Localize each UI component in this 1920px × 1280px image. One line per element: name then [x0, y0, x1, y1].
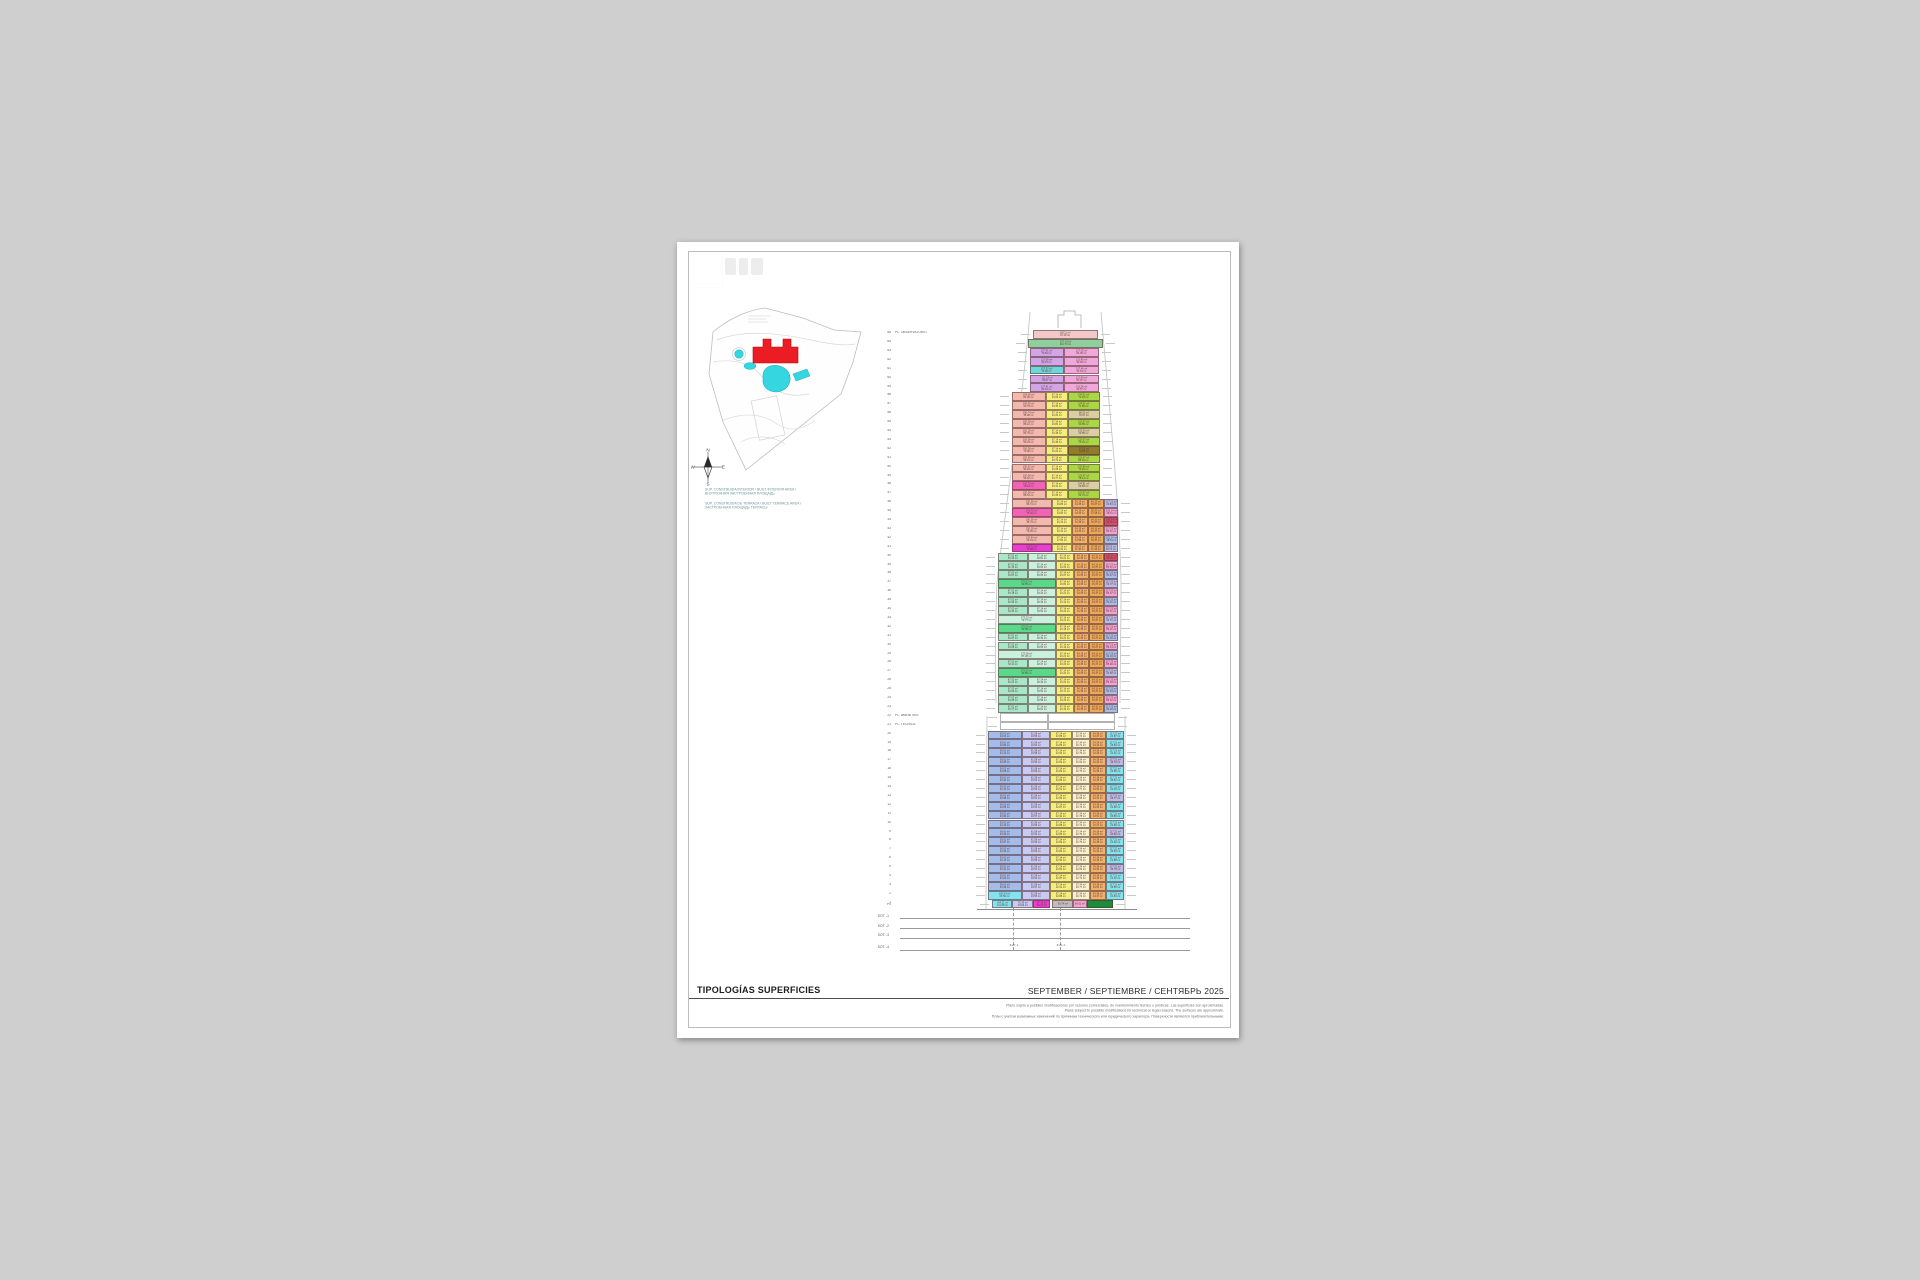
floor-tick-right — [1127, 744, 1136, 745]
cell-areas: 117.23 m²30.29 m² — [1105, 706, 1116, 711]
cell-areas: 237.14 m²110.73 m² — [1060, 341, 1071, 346]
floor-cell: 117.21 m²24.88 m² — [1106, 855, 1124, 864]
cell-areas: 117.21 m²45.80 m² — [1109, 830, 1120, 835]
floor-tick-left — [986, 708, 995, 709]
floor-cell: 54.38 m²19.50 m² — [1090, 882, 1106, 891]
floor-cell: 93.61 m²44.12 m² — [988, 748, 1022, 757]
floor-number: 15 — [879, 776, 891, 779]
floor-tick-left — [986, 610, 995, 611]
floor-cell: 64.10 m²15.37 m² — [1089, 686, 1104, 695]
floor-tick-right — [1127, 850, 1136, 851]
cell-areas: 54.18 m²19.35 m² — [1077, 554, 1087, 559]
floor-tick-right — [1103, 414, 1112, 415]
cell-areas: 117.23 m²85.21 m² — [1105, 528, 1116, 533]
floor-cell: 54.18 m²19.35 m² — [1074, 704, 1089, 713]
cell-areas: 87.02 m²33.17 m² — [1008, 706, 1018, 711]
cell-areas: 67.14 m²23.48 m² — [1052, 430, 1062, 435]
floor-cell: 121.89 m²51.97 m² — [1064, 375, 1099, 384]
floor-cell: 173.23 m²72.77 m² — [998, 615, 1056, 624]
cell-areas: 67.14 m²24.06 m² — [1052, 394, 1062, 399]
floor-cell: 54.18 m²19.35 m² — [1072, 526, 1088, 535]
floor-tick-right — [1103, 485, 1112, 486]
floor-cell: 57.34 m²22.75 m² — [1072, 766, 1090, 775]
cell-areas: 67.14 m²18.58 m² — [1037, 697, 1047, 702]
floor-cell: 54.18 m²19.35 m² — [1072, 508, 1088, 517]
cell-areas: 117.23 m²30.27 m² — [1105, 572, 1116, 577]
floor-tick-right — [1127, 824, 1136, 825]
cell-areas: 57.34 m²22.72 m² — [1076, 777, 1086, 782]
floor-cell: 93.61 m²44.02 m² — [988, 873, 1022, 882]
floor-cell: 64.10 m²15.37 m² — [1089, 677, 1104, 686]
floor-cell: 54.18 m²19.35 m² — [1074, 668, 1089, 677]
cell-areas: 93.74 m² — [1058, 903, 1068, 906]
floor-cell: 137.46 m²33.54 m² — [1064, 366, 1099, 375]
cell-areas: 131.86 m²94.09 m² — [1076, 358, 1087, 363]
cell-areas: 57.34 m²22.78 m² — [1076, 812, 1086, 817]
floor-cell: 67.14 m²23.12 m² — [1052, 526, 1072, 535]
canvas: N W E S SUP. CONSTRUIDA INTERIOR / BUILT… — [0, 0, 1920, 1280]
floor-cell: 54.18 m²19.35 m² — [1072, 517, 1088, 526]
floor-cell: 104.81 m²29.89 m² — [1068, 481, 1100, 490]
cell-areas: 54.38 m²19.47 m² — [1093, 892, 1103, 897]
cell-areas: 67.14 m²24.35 m² — [1052, 403, 1062, 408]
cell-areas: 117.23 m²30.25 m² — [1105, 634, 1116, 639]
floor-tick-left — [976, 841, 985, 842]
floor-cell: 157.52 m²73.46 m² — [1030, 366, 1064, 375]
floor-cell: 117.23 m²33.77 m² — [1104, 579, 1118, 588]
cell-areas: 54.18 m²19.35 m² — [1077, 572, 1087, 577]
floor-cell: 87.02 m²33.13 m² — [998, 553, 1028, 562]
floor-cell: 67.14 m²23.82 m² — [1056, 579, 1074, 588]
floor-tick-right — [1121, 619, 1130, 620]
floor-row: 47150.38 m²86.51 m²67.14 m²23.45 m²123.0… — [677, 490, 1239, 499]
floor-cell: 93.61 m²44.15 m² — [988, 784, 1022, 793]
cell-areas: 64.10 m²15.37 m² — [1091, 501, 1101, 506]
floor-cell: 123.08 m²94.15 m² — [1030, 357, 1064, 366]
floor-tick-left — [976, 788, 985, 789]
floor-cell: 124.01 m²74.63 m² — [1068, 392, 1100, 401]
floor-number: 50 — [879, 465, 891, 468]
cell-areas: 175.03 m²93.55 m² — [1021, 581, 1032, 586]
cell-areas: 67.14 m²23.79 m² — [1052, 456, 1062, 461]
floor-cell: 54.38 m²19.50 m² — [1090, 784, 1106, 793]
floor-row: 1164.21 m²111.08 m²76.39 m²29.84 m²87.16… — [677, 900, 1239, 909]
floor-tick-left — [1000, 450, 1009, 451]
floor-tick-right — [1121, 663, 1130, 664]
floor-cell: 150.28 m²86.12 m² — [1012, 419, 1046, 428]
floor-number: 45 — [879, 509, 891, 512]
floor-cell: 64.10 m²15.37 m² — [1088, 499, 1104, 508]
cell-areas: 117.21 m²24.87 m² — [1109, 732, 1120, 737]
floor-cell: 67.14 m²22.91 m² — [1050, 882, 1072, 891]
cell-areas: 54.18 m²19.35 m² — [1077, 706, 1087, 711]
floor-cell: 67.14 m²18.50 m² — [1028, 686, 1056, 695]
floor-tick-right — [1121, 530, 1130, 531]
floor-cell: 123.07 m²78.14 m² — [1068, 472, 1100, 481]
floor-cell: 64.10 m²15.37 m² — [1089, 704, 1104, 713]
floor-number: 47 — [879, 491, 891, 494]
floor-tick-right — [1103, 441, 1112, 442]
floor-row: 32175.03 m²93.58 m²67.14 m²23.18 m²54.18… — [677, 624, 1239, 633]
floor-cell: 54.18 m²19.35 m² — [1072, 499, 1088, 508]
floor-number: 23 — [879, 705, 891, 708]
floor-tick-left — [1018, 379, 1027, 380]
floor-tick-right — [1103, 468, 1112, 469]
cell-areas: 117.23 m²30.23 m² — [1105, 688, 1116, 693]
cell-areas: 54.18 m²19.35 m² — [1075, 528, 1085, 533]
cell-areas: 137.46 m²33.54 m² — [1076, 367, 1087, 372]
floor-cell: 57.48 m²17.46 m² — [1088, 544, 1104, 553]
cell-areas: 67.14 m²23.28 m² — [1052, 465, 1062, 470]
cell-areas: 61.58 m²19.52 m² — [1031, 830, 1041, 835]
cell-areas: 54.38 m²19.50 m² — [1093, 884, 1103, 889]
floor-cell: 54.18 m²19.35 m² — [1074, 561, 1089, 570]
floor-tick-right — [1121, 690, 1130, 691]
floor-cell: 54.38 m²19.44 m² — [1090, 739, 1106, 748]
floor-cell: 105.24 m²23.59 m² — [988, 891, 1022, 900]
cell-areas: 93.61 m²44.07 m² — [1000, 839, 1010, 844]
floor-tick-left — [1000, 405, 1009, 406]
floor-cell: 97.02 m²29.85 m² — [1068, 446, 1100, 455]
cell-areas: 54.38 m²19.43 m² — [1093, 830, 1103, 835]
floor-cell — [1000, 713, 1048, 722]
cell-areas: 67.14 m²18.44 m² — [1037, 590, 1047, 595]
floor-tick-left — [1018, 370, 1027, 371]
floor-number: 39 — [879, 563, 891, 566]
floor-cell: 127.05 m²82.05 m² — [1064, 348, 1099, 357]
cell-areas: 111.19 m²29.67 m² — [1042, 376, 1053, 381]
floor-cell: 100.54 m²29.84 m² — [1104, 517, 1118, 526]
cell-areas: 105.24 m²23.59 m² — [999, 892, 1010, 897]
floor-row: 51150.38 m²96.41 m²67.14 m²23.79 m²123.0… — [677, 455, 1239, 464]
cell-areas: 87.02 m²33.40 m² — [1008, 608, 1018, 613]
floor-number: 34 — [879, 607, 891, 610]
floor-cell: 103.00 m²29.85 m² — [1068, 428, 1100, 437]
floor-number: 30 — [879, 643, 891, 646]
floor-cell: 150.38 m²56.92 m² — [1012, 472, 1046, 481]
cell-areas: 57.34 m²22.77 m² — [1076, 884, 1086, 889]
floor-number: 6 — [879, 856, 891, 859]
cell-areas: 64.10 m²15.37 m² — [1091, 528, 1101, 533]
cell-areas: 54.38 m²19.42 m² — [1093, 759, 1103, 764]
cell-areas: 67.14 m²23.07 m² — [1060, 572, 1070, 577]
floor-cell: 67.14 m²22.84 m² — [1050, 757, 1072, 766]
cell-areas: 57.48 m²17.46 m² — [1091, 545, 1101, 550]
floor-number: 27 — [879, 669, 891, 672]
floor-cell: 141.73 m²75.04 m² — [1012, 481, 1046, 490]
floor-row: 55150.28 m²86.12 m²67.14 m²23.82 m²123.0… — [677, 419, 1239, 428]
floor-cell: 64.10 m²15.37 m² — [1089, 579, 1104, 588]
floor-tick-right — [1121, 557, 1130, 558]
floor-cell: 93.61 m²44.05 m² — [988, 802, 1022, 811]
floor-tick-left — [1000, 512, 1009, 513]
cell-areas: 57.34 m²22.68 m² — [1076, 795, 1086, 800]
cell-areas: 64.10 m²15.37 m² — [1092, 706, 1102, 711]
cell-areas: 117.21 m²24.85 m² — [1109, 768, 1120, 773]
floor-row: 52150.28 m²73.08 m²67.14 m²23.24 m²97.02… — [677, 446, 1239, 455]
cell-areas: 123.07 m²64.79 m² — [1078, 492, 1089, 497]
cell-areas: 61.58 m²19.56 m² — [1031, 768, 1041, 773]
floor-cell: 87.02 m²32.96 m² — [998, 597, 1028, 606]
floor-tick-left — [976, 735, 985, 736]
floor-cell: 67.14 m²22.90 m² — [1050, 748, 1072, 757]
floor-cell: 117.21 m²45.78 m² — [1106, 864, 1124, 873]
cell-areas: 67.14 m²23.82 m² — [1060, 581, 1070, 586]
floor-number: 19 — [879, 741, 891, 744]
cell-areas: 54.38 m²19.45 m² — [1093, 777, 1103, 782]
cell-areas: 67.14 m²23.13 m² — [1057, 519, 1067, 524]
cell-areas: 64.10 m²15.37 m² — [1092, 697, 1102, 702]
floor-number: 8 — [879, 838, 891, 841]
floor-tick-right — [1127, 886, 1136, 887]
cell-areas: 54.02 m² — [1075, 903, 1085, 906]
cell-areas: 61.58 m²19.50 m² — [1031, 759, 1041, 764]
cell-areas: 54.18 m²19.35 m² — [1075, 519, 1085, 524]
floor-cell: 87.02 m²33.09 m² — [998, 686, 1028, 695]
cell-areas: 67.14 m²22.87 m² — [1056, 803, 1066, 808]
floor-tick-left — [988, 717, 997, 718]
cell-areas: 136.54 m²29.24 m² — [1026, 536, 1037, 541]
floor-row: 61157.52 m²73.46 m²137.46 m²33.54 m² — [677, 366, 1239, 375]
floor-row: 21PL. TECNICA — [677, 722, 1239, 731]
floor-cell: 93.61 m²44.07 m² — [988, 837, 1022, 846]
floor-tick-right — [1118, 726, 1127, 727]
cell-areas: 67.14 m²18.55 m² — [1037, 643, 1047, 648]
floor-cell: 136.54 m²29.24 m² — [1012, 535, 1052, 544]
floor-cell: 67.14 m²23.21 m² — [1056, 553, 1074, 562]
cell-areas: 117.23 m²85.18 m² — [1105, 679, 1116, 684]
floor-row: 57160.05 m²62.79 m²67.14 m²24.35 m²124.0… — [677, 401, 1239, 410]
cell-areas: 123.07 m²78.14 m² — [1078, 474, 1089, 479]
cell-areas: 38.20 m²11.45 m² — [1075, 545, 1085, 550]
cell-areas: 67.14 m²18.81 m² — [1037, 554, 1047, 559]
floor-cell: 98.52 m²76.07 m² — [1068, 410, 1100, 419]
cell-areas: 67.14 m²23.21 m² — [1060, 590, 1070, 595]
floor-number: 16 — [879, 767, 891, 770]
cell-areas: 117.21 m²45.78 m² — [1109, 866, 1120, 871]
floor-row: 1493.61 m²44.15 m²61.58 m²19.59 m²67.14 … — [677, 784, 1239, 793]
floor-cell: 67.14 m²23.24 m² — [1046, 446, 1068, 455]
floor-cell: 64.10 m²15.37 m² — [1089, 624, 1104, 633]
floor-label: PL. AMENITIES — [895, 714, 918, 717]
floor-cell: 117.23 m²85.07 m² — [1104, 588, 1118, 597]
floor-row: 1693.61 m²44.08 m²61.58 m²19.56 m²67.14 … — [677, 766, 1239, 775]
cell-areas: 67.14 m²23.25 m² — [1060, 697, 1070, 702]
floor-tick-right — [1102, 370, 1111, 371]
floor-number: 18 — [879, 749, 891, 752]
floor-cell: 117.21 m²24.85 m² — [1106, 766, 1124, 775]
floor-number: 35 — [879, 598, 891, 601]
cell-areas: 67.14 m²22.86 m² — [1056, 848, 1066, 853]
floor-cell: 67.14 m²18.44 m² — [1028, 588, 1056, 597]
floor-cell: 100.54 m²29.84 m² — [1104, 553, 1118, 562]
cell-areas: 61.58 m²19.58 m² — [1031, 857, 1041, 862]
floor-cell: 61.58 m²19.51 m² — [1022, 793, 1050, 802]
floor-cell: 64.10 m²15.37 m² — [1089, 659, 1104, 668]
floor-cell: 117.21 m²45.79 m² — [1106, 757, 1124, 766]
floor-number: 57 — [879, 402, 891, 405]
cell-areas: 141.73 m²75.04 m² — [1023, 483, 1034, 488]
floor-cell: 67.14 m²23.20 m² — [1056, 668, 1074, 677]
cell-areas: 67.14 m²23.48 m² — [1052, 439, 1062, 444]
floor-cell: 54.18 m²19.35 m² — [1074, 553, 1089, 562]
floor-tick-left — [1000, 539, 1009, 540]
floor-row: 63127.41 m²73.84 m²127.05 m²82.05 m² — [677, 348, 1239, 357]
cell-areas: 67.14 m²22.88 m² — [1056, 732, 1066, 737]
floor-tick-left — [1000, 530, 1009, 531]
floor-row: 1893.61 m²44.12 m²61.58 m²19.58 m²67.14 … — [677, 748, 1239, 757]
floor-row: 50150.32 m²94.42 m²67.14 m²23.28 m²120.8… — [677, 464, 1239, 473]
cell-areas: 64.10 m²15.37 m² — [1092, 581, 1102, 586]
floor-row: 2887.02 m²33.11 m²67.14 m²18.47 m²67.14 … — [677, 659, 1239, 668]
floor-number: 63 — [879, 349, 891, 352]
floor-number: 36 — [879, 589, 891, 592]
cell-areas: 54.38 m²19.48 m² — [1093, 768, 1103, 773]
floor-tick-left — [986, 628, 995, 629]
floor-cell: 61.58 m²19.58 m² — [1022, 748, 1050, 757]
cell-areas: 117.23 m²85.09 m² — [1105, 661, 1116, 666]
cell-areas: 104.81 m²29.89 m² — [1078, 483, 1089, 488]
floor-row: 493.61 m²44.02 m²61.58 m²19.54 m²67.14 m… — [677, 873, 1239, 882]
floor-tick-right — [1121, 574, 1130, 575]
floor-cell: 120.85 m²70.46 m² — [1068, 464, 1100, 473]
cell-areas: 93.61 m²44.13 m² — [1000, 857, 1010, 862]
floor-cell: 87.02 m²33.35 m² — [998, 695, 1028, 704]
floor-cell: 67.14 m²24.06 m² — [1046, 392, 1068, 401]
floor-cell: 54.18 m²19.35 m² — [1074, 677, 1089, 686]
cell-areas: 67.14 m²23.77 m² — [1052, 474, 1062, 479]
cell-areas: 61.58 m²19.53 m² — [1031, 848, 1041, 853]
floor-row: 1593.61 m²43.92 m²61.58 m²19.53 m²67.14 … — [677, 775, 1239, 784]
floor-row: 3487.02 m²33.40 m²67.14 m²18.52 m²67.14 … — [677, 606, 1239, 615]
cell-areas: 54.18 m²19.35 m² — [1077, 643, 1087, 648]
cell-areas: 117.21 m²45.81 m² — [1109, 777, 1120, 782]
floor-cell: 61.58 m²19.56 m² — [1022, 837, 1050, 846]
floor-cell: 67.14 m²23.48 m² — [1046, 428, 1068, 437]
cell-areas: 117.21 m²45.83 m² — [1109, 848, 1120, 853]
cell-areas: 67.14 m²23.17 m² — [1060, 688, 1070, 693]
floor-cell: 237.14 m²110.73 m² — [1028, 339, 1103, 348]
floor-cell: 117.21 m²45.77 m² — [1106, 793, 1124, 802]
cell-areas: 117.21 m²24.90 m² — [1109, 839, 1120, 844]
floor-cell: 175.03 m²93.55 m² — [998, 668, 1056, 677]
cell-areas: 67.14 m²16.42 m² — [1057, 545, 1067, 550]
floor-number: 9 — [879, 830, 891, 833]
floor-tick-left — [976, 815, 985, 816]
cell-areas: 54.38 m²19.42 m² — [1093, 866, 1103, 871]
floor-tick-right — [1127, 788, 1136, 789]
floor-cell — [1048, 713, 1115, 722]
floor-cell: 87.16 m²63.24 m² — [1033, 900, 1050, 909]
floor-cell: 87.02 m²33.11 m² — [998, 659, 1028, 668]
floor-tick-right — [1103, 450, 1112, 451]
cell-areas: 123.07 m²75.44 m² — [1078, 439, 1089, 444]
floor-cell: 87.02 m²33.07 m² — [998, 633, 1028, 642]
cell-areas: 150.28 m²73.08 m² — [1023, 447, 1034, 452]
floor-cell: 61.58 m²19.56 m² — [1022, 766, 1050, 775]
floor-row: 3587.02 m²32.96 m²67.14 m²18.46 m²67.14 … — [677, 597, 1239, 606]
floor-number: 61 — [879, 367, 891, 370]
cell-areas: 117.21 m²45.85 m² — [1109, 884, 1120, 889]
cell-areas: 54.18 m²19.35 m² — [1077, 688, 1087, 693]
cell-areas: 103.14 m²28.51 m² — [1105, 510, 1116, 515]
floor-cell: 67.14 m²23.41 m² — [1046, 481, 1068, 490]
floor-tick-left — [1000, 477, 1009, 478]
floor-cell: 87.02 m²33.18 m² — [998, 588, 1028, 597]
floor-cell: 141.73 m²75.04 m² — [1012, 508, 1052, 517]
cell-areas: 61.58 m²19.57 m² — [1031, 884, 1041, 889]
cell-areas: 87.02 m²33.28 m² — [1008, 643, 1018, 648]
floor-cell: 54.18 m²19.35 m² — [1074, 570, 1089, 579]
cell-areas: 61.58 m²19.54 m² — [1031, 803, 1041, 808]
floor-cell: 64.10 m²15.37 m² — [1089, 553, 1104, 562]
cell-areas: 127.41 m²73.84 m² — [1041, 350, 1052, 355]
floor-tick-left — [976, 806, 985, 807]
floor-cell: 54.18 m²19.35 m² — [1074, 695, 1089, 704]
floor-tick-left — [986, 690, 995, 691]
floor-cell: 175.03 m²93.55 m² — [998, 579, 1056, 588]
floor-cell: 67.14 m²23.21 m² — [1056, 650, 1074, 659]
cell-areas: 93.61 m²44.10 m² — [1000, 821, 1010, 826]
cell-areas: 150.38 m²56.92 m² — [1023, 474, 1034, 479]
floor-cell: 164.21 m²111.08 m² — [992, 900, 1012, 909]
cell-areas: 54.18 m²19.35 m² — [1077, 625, 1087, 630]
floor-tick-left — [976, 895, 985, 896]
cell-areas: 93.61 m²43.90 m² — [1000, 812, 1010, 817]
cell-areas: 93.61 m²43.89 m² — [1000, 741, 1010, 746]
cell-areas: 57.34 m²22.69 m² — [1076, 866, 1086, 871]
floor-cell: 103.14 m²28.51 m² — [1104, 508, 1118, 517]
floor-cell: 57.34 m²22.69 m² — [1072, 757, 1090, 766]
cell-areas: 54.18 m²19.35 m² — [1077, 670, 1087, 675]
floor-cell: 123.07 m²20.85 m² — [1068, 419, 1100, 428]
floor-tick-right — [1121, 548, 1130, 549]
floor-row: 62123.08 m²94.15 m²131.86 m²94.09 m² — [677, 357, 1239, 366]
floor-cell: 64.10 m²15.37 m² — [1089, 597, 1104, 606]
floor-number: 58 — [879, 393, 891, 396]
floor-number: 55 — [879, 420, 891, 423]
cell-areas: 67.14 m²18.46 m² — [1037, 599, 1047, 604]
floor-cell: 93.61 m²43.94 m² — [988, 828, 1022, 837]
cell-areas: 64.10 m²15.37 m² — [1092, 554, 1102, 559]
cell-areas: 175.03 m²93.55 m² — [1021, 670, 1032, 675]
floor-cell: 38.20 m²11.45 m² — [1072, 544, 1088, 553]
cell-areas: 67.14 m²23.86 m² — [1057, 501, 1067, 506]
floor-cell: 127.41 m²73.84 m² — [1030, 348, 1064, 357]
floor-cell: 67.14 m²23.13 m² — [1052, 517, 1072, 526]
floor-cell: 64.10 m²15.37 m² — [1089, 615, 1104, 624]
floor-cell: 64.10 m²15.37 m² — [1089, 695, 1104, 704]
floor-cell: 67.14 m²24.34 m² — [1046, 410, 1068, 419]
cell-areas: 64.10 m²15.37 m² — [1092, 599, 1102, 604]
floor-cell: 76.39 m²29.84 m² — [1012, 900, 1033, 909]
floor-cell: 64.10 m²15.37 m² — [1089, 642, 1104, 651]
floor-cell: 150.28 m²73.08 m² — [1012, 446, 1046, 455]
floor-cell: 117.23 m²33.71 m² — [1104, 615, 1118, 624]
floor-tick-right — [1127, 752, 1136, 753]
floor-cell: 67.14 m²23.18 m² — [1056, 624, 1074, 633]
floor-cell: 117.23 m²30.25 m² — [1104, 633, 1118, 642]
cell-areas: 175.03 m²93.58 m² — [1021, 625, 1032, 630]
floor-row: 58159.36 m²81.06 m²67.14 m²24.06 m²124.0… — [677, 392, 1239, 401]
cell-areas: 67.14 m²23.45 m² — [1052, 492, 1062, 497]
floor-tick-right — [1121, 637, 1130, 638]
floor-number: 26 — [879, 678, 891, 681]
floor-tick-left — [986, 646, 995, 647]
floor-cell: 159.36 m²81.06 m² — [1012, 392, 1046, 401]
cell-areas: 93.61 m²44.04 m² — [1000, 732, 1010, 737]
floor-tick-left — [1018, 352, 1027, 353]
